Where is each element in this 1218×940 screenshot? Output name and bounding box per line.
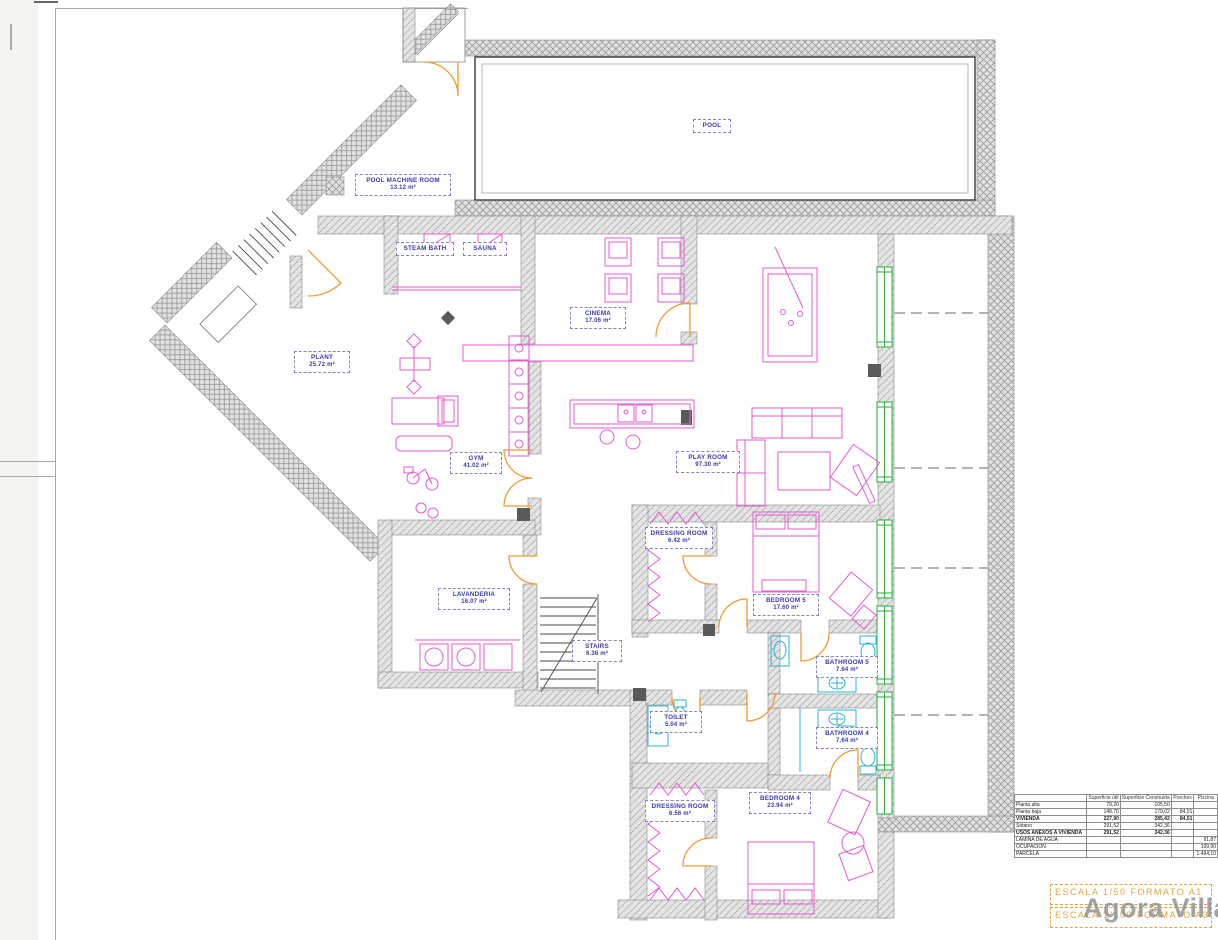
door-bathroom-4 [830, 750, 858, 778]
table-row: USOS ANEXOS A VIVIENDA291,52342,36 [1015, 830, 1218, 837]
room-label-sauna: SAUNA [463, 242, 507, 256]
room-label-bedroom-4: BEDROOM 423.94 m² [749, 792, 811, 814]
room-label-dressing-room-4: DRESSING ROOM6.56 m² [645, 800, 715, 822]
room-label-steam-bath: STEAM BATH [396, 242, 454, 256]
room-label-bathroom-4: BATHROOM 47.64 m² [816, 727, 878, 749]
room-label-plant: PLANT25.72 m² [294, 351, 350, 373]
door-lavanderia [509, 556, 537, 584]
table-row: LAMINA DE AGUA91,87 [1015, 837, 1218, 844]
sofa-group [737, 408, 880, 506]
room-label-cinema: CINEMA17.06 m² [570, 307, 626, 329]
room-label-pool: POOL [693, 119, 731, 133]
laundry-machines [415, 640, 520, 670]
cinema-seats [605, 238, 684, 302]
table-row: VIVIENDA227,90285,4284,51 [1015, 816, 1218, 823]
door-dressing-5 [683, 556, 711, 584]
door-entry [308, 250, 341, 296]
table-row: OCUPACION199,90 [1015, 844, 1218, 851]
room-label-dressing-room-5: DRESSING ROOM6.42 m² [645, 527, 713, 549]
door-vestibule [424, 62, 458, 96]
room-label-bedroom-5: BEDROOM 517.60 m² [753, 594, 819, 616]
watermark: Agora Villas [1083, 893, 1218, 924]
room-label-pool-machine-room: POOL MACHINE ROOM13.12 m² [355, 174, 451, 196]
door-dressing-4 [683, 838, 711, 866]
room-label-toilet: TOILET5.04 m² [650, 711, 702, 733]
table-row: PARCELA1.494,10 [1015, 851, 1218, 858]
door-bedroom-5 [719, 599, 747, 627]
room-label-bathroom-5: BATHROOM 57.64 m² [816, 656, 878, 678]
wall-niche [200, 286, 257, 343]
table-row: Planta baja148,70179,0284,51 [1015, 809, 1218, 816]
table-row: Sótano291,52342,36 [1015, 823, 1218, 830]
exterior-entrance-stairs [233, 211, 297, 275]
kitchen-island [570, 400, 694, 449]
table-row: Planta alta79,20105,50 [1015, 802, 1218, 809]
cinema-south-band [463, 345, 693, 361]
room-label-gym: GYM41.02 m² [450, 452, 502, 474]
room-label-lavanderia: LAVANDERIA16.07 m² [438, 588, 510, 610]
patio-dashed-lines [894, 313, 988, 715]
areas-table: Superficie útil Superficie Construida Po… [1014, 794, 1218, 858]
drawing-sheet: POOL POOL MACHINE ROOM13.12 m² STEAM BAT… [0, 0, 1218, 940]
room-label-stairs: STAIRS6.36 m² [572, 640, 622, 662]
billiard-table [763, 247, 817, 362]
areas-table-header-row: Superficie útil Superficie Construida Po… [1015, 795, 1218, 802]
room-label-play-room: PLAY ROOM97.30 m² [676, 451, 740, 473]
